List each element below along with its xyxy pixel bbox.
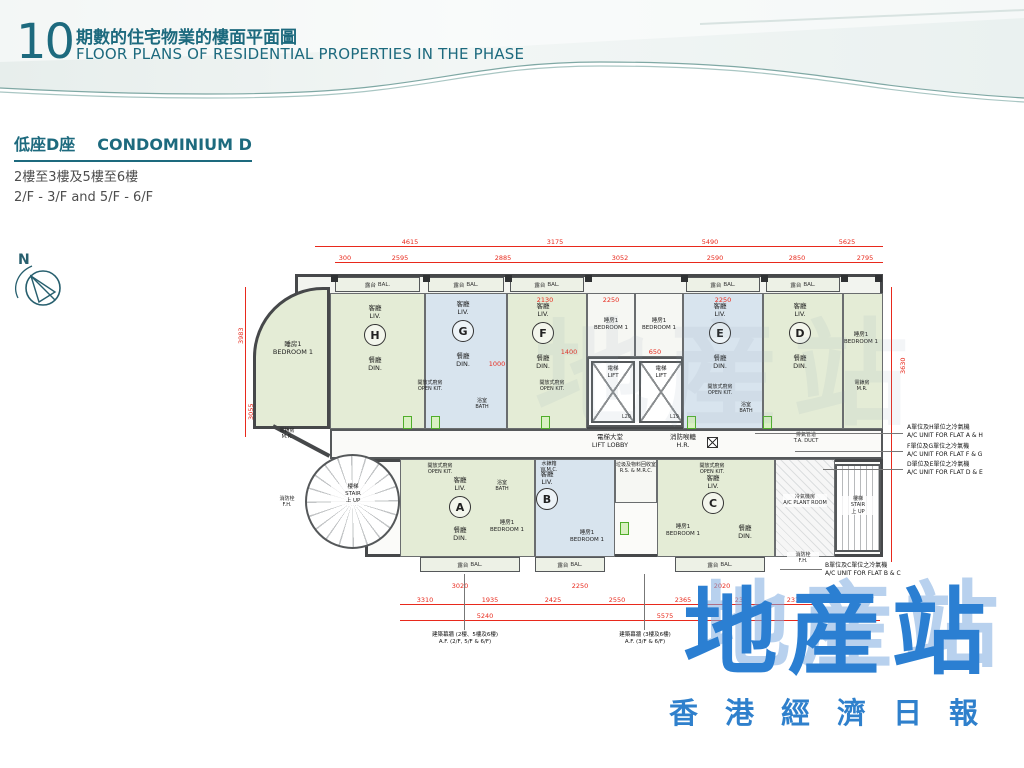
- ac-platform-box: [763, 416, 772, 429]
- room-label-bedroom1: 睡房1BEDROOM 1: [563, 530, 611, 544]
- column: [761, 275, 768, 282]
- floors-en: 2/F - 3/F and 5/F - 6/F: [14, 188, 252, 208]
- room-label-water-meter: 水錶箱W.M.C.: [531, 461, 567, 474]
- room-label-dining: 餐廳DIN.: [778, 354, 822, 370]
- column: [505, 275, 512, 282]
- room-label-bath: 浴室BATH: [731, 402, 761, 415]
- unit-circle-a: A: [449, 496, 471, 518]
- balcony-d: 露台BAL.: [766, 277, 840, 292]
- block-title-en: CONDOMINIUM D: [97, 135, 252, 154]
- lift-l20: 電梯LIFT L20: [591, 361, 635, 423]
- logo-main-text: 地産站: [655, 580, 1024, 688]
- room-label-fire-hydrant: 消防栓F.H.: [271, 496, 303, 509]
- room-label-open-kitchen: 開放式廚房OPEN KIT.: [415, 463, 465, 476]
- column: [423, 275, 430, 282]
- dimension-line: [335, 262, 883, 263]
- room-bedroom-h: [253, 287, 330, 429]
- room-label-open-kitchen: 開放式廚房OPEN KIT.: [527, 380, 577, 393]
- floors-zh: 2樓至3樓及5樓至6樓: [14, 168, 252, 188]
- block-title: 低座D座CONDOMINIUM D: [14, 131, 252, 162]
- unit-circle-f: F: [532, 322, 554, 344]
- publisher-logo: 地産站 香港經濟日報: [655, 580, 1024, 732]
- room-label-living: 客廳LIV.: [521, 302, 565, 318]
- unit-circle-d: D: [789, 322, 811, 344]
- room-label-living: 客廳LIV.: [778, 302, 822, 318]
- leader-line: [464, 574, 465, 630]
- column: [331, 275, 338, 282]
- room-label-living: 客廳LIV.: [353, 304, 397, 320]
- room-label-ac-plant: 冷氣機房A/C PLANT ROOM: [783, 494, 827, 507]
- dimension-value: 2250: [715, 296, 732, 304]
- section-heading: 低座D座CONDOMINIUM D 2樓至3樓及5樓至6樓 2/F - 3/F …: [14, 131, 252, 208]
- room-label-lift-lobby: 電梯大堂LIFT LOBBY: [575, 433, 645, 449]
- room-label-open-kitchen: 開放式廚房OPEN KIT.: [695, 384, 745, 397]
- room-label-bedroom1: 睡房1BEDROOM 1: [839, 332, 883, 346]
- column: [875, 275, 882, 282]
- room-label-meter-room: 電錶房M.R.: [843, 380, 881, 393]
- ac-platform-box: [687, 416, 696, 429]
- dimension-value: 2250: [572, 582, 589, 590]
- room-label-living: 客廳LIV.: [691, 474, 735, 490]
- dimension-value: 3310: [417, 596, 434, 604]
- dimension-value: 1400: [561, 348, 578, 356]
- room-label-dining: 餐廳DIN.: [521, 354, 565, 370]
- ac-note-flat-f-g: F單位及G單位之冷氣機A/C UNIT FOR FLAT F & G: [907, 443, 982, 459]
- dimension-value: 2590: [707, 254, 724, 262]
- dimension-line: [245, 287, 246, 437]
- balcony-g: 露台BAL.: [428, 277, 504, 292]
- af-note-1: 建築幕牆 (2樓、5樓及6樓)A.F. (2/F, 5/F & 6/F): [410, 632, 520, 646]
- dimension-line: [315, 246, 883, 247]
- room-label-bedroom1: 睡房1BEDROOM 1: [263, 340, 323, 356]
- dimension-value: 2425: [545, 596, 562, 604]
- lift-number: L20: [622, 414, 631, 420]
- room-label-dining: 餐廳DIN.: [353, 356, 397, 372]
- room-label-bedroom1: 睡房1BEDROOM 1: [483, 520, 531, 534]
- ac-platform-box: [403, 416, 412, 429]
- ac-plant-room: [775, 459, 835, 557]
- dimension-value: 2130: [537, 296, 554, 304]
- room-label-living: 客廳LIV.: [698, 302, 742, 318]
- room-label-bedroom1: 睡房1BEDROOM 1: [659, 524, 707, 538]
- dimension-value: 3983: [237, 327, 245, 344]
- room-label-bath: 浴室BATH: [467, 398, 497, 411]
- logo-sub-text: 香港經濟日報: [655, 690, 1024, 732]
- dimension-value: 2550: [609, 596, 626, 604]
- room-label-stair: 樓梯STAIR上 UP: [331, 484, 375, 505]
- dimension-value: 650: [649, 348, 661, 356]
- room-label-bath: 浴室BATH: [487, 480, 517, 493]
- room-label-dining: 餐廳DIN.: [438, 526, 482, 542]
- dimension-value: 3630: [899, 357, 907, 374]
- dimension-value: 5490: [702, 238, 719, 246]
- dimension-value: 3020: [452, 582, 469, 590]
- ac-platform-box: [620, 522, 629, 535]
- balcony-e: 露台BAL.: [686, 277, 760, 292]
- unit-circle-g: G: [452, 320, 474, 342]
- balcony-c: 露台BAL.: [675, 557, 765, 572]
- north-label: N: [18, 252, 30, 268]
- lift-number: L19: [670, 414, 679, 420]
- page-number: 10: [16, 18, 73, 66]
- dimension-value: 1935: [482, 596, 499, 604]
- ac-note-flat-a-h: A單位及H單位之冷氣機A/C UNIT FOR FLAT A & H: [907, 424, 983, 440]
- ac-note-flat-d-e: D單位及E單位之冷氣機A/C UNIT FOR FLAT D & E: [907, 461, 983, 477]
- room-label-living: 客廳LIV.: [438, 476, 482, 492]
- leader-line: [823, 469, 903, 470]
- ac-note-flat-b-c: B單位及C單位之冷氣機A/C UNIT FOR FLAT B & C: [825, 562, 901, 578]
- unit-circle-c: C: [702, 492, 724, 514]
- page-header: 10 期數的住宅物業的樓面平面圖 FLOOR PLANS OF RESIDENT…: [0, 0, 1024, 112]
- column: [585, 275, 592, 282]
- room-label-refuse-room: 垃圾及物料回收室R.S. & M.R.C.: [616, 462, 656, 475]
- room-label-living: 客廳LIV.: [441, 300, 485, 316]
- dimension-value: 4615: [402, 238, 419, 246]
- room-label-open-kitchen: 開放式廚房OPEN KIT.: [405, 380, 455, 393]
- leader-line: [755, 433, 903, 434]
- room-label-hose-reel: 消防喉轆H.R.: [663, 433, 703, 449]
- balcony-h: 露台BAL.: [335, 277, 420, 292]
- room-label-stair: 樓梯STAIR上 UP: [839, 496, 877, 515]
- dimension-value: 5240: [477, 612, 494, 620]
- header-title-en: FLOOR PLANS OF RESIDENTIAL PROPERTIES IN…: [76, 45, 524, 63]
- hose-reel-box: [707, 437, 718, 448]
- unit-circle-e: E: [709, 322, 731, 344]
- leader-line: [795, 451, 903, 452]
- dimension-value: 3175: [547, 238, 564, 246]
- leader-line: [780, 569, 822, 570]
- room-label-meter-room: 電錶房M.R.: [265, 428, 309, 441]
- unit-circle-b: B: [536, 488, 558, 510]
- balcony-f: 露台BAL.: [510, 277, 584, 292]
- balcony-b: 露台BAL.: [535, 557, 605, 572]
- dimension-value: 3052: [612, 254, 629, 262]
- balcony-a: 露台BAL.: [420, 557, 520, 572]
- ac-platform-box: [431, 416, 440, 429]
- dimension-value: 2850: [789, 254, 806, 262]
- dimension-value: 2250: [603, 296, 620, 304]
- room-label-dining: 餐廳DIN.: [441, 352, 485, 368]
- unit-circle-h: H: [364, 324, 386, 346]
- room-label-dining: 餐廳DIN.: [723, 524, 767, 540]
- dimension-value: 5625: [839, 238, 856, 246]
- block-title-zh: 低座D座: [14, 135, 75, 154]
- lift-l19: 電梯LIFT L19: [639, 361, 683, 423]
- room-label-open-kitchen: 開放式廚房OPEN KIT.: [687, 463, 737, 476]
- dimension-value: 300: [339, 254, 351, 262]
- dimension-value: 2595: [392, 254, 409, 262]
- bedroom-d-area: [843, 293, 883, 429]
- column: [841, 275, 848, 282]
- north-compass: N: [10, 246, 70, 320]
- ac-platform-box: [541, 416, 550, 429]
- room-label-bedroom1: 睡房1BEDROOM 1: [589, 318, 633, 332]
- dimension-line: [891, 287, 892, 562]
- room-label-bedroom1: 睡房1BEDROOM 1: [637, 318, 681, 332]
- dimension-value: 2795: [857, 254, 874, 262]
- column: [681, 275, 688, 282]
- leader-line: [644, 574, 645, 630]
- room-label-fire-hydrant: 消防栓F.H.: [787, 552, 819, 565]
- room-label-dining: 餐廳DIN.: [698, 354, 742, 370]
- dimension-value: 2885: [495, 254, 512, 262]
- dimension-value: 1000: [489, 360, 506, 368]
